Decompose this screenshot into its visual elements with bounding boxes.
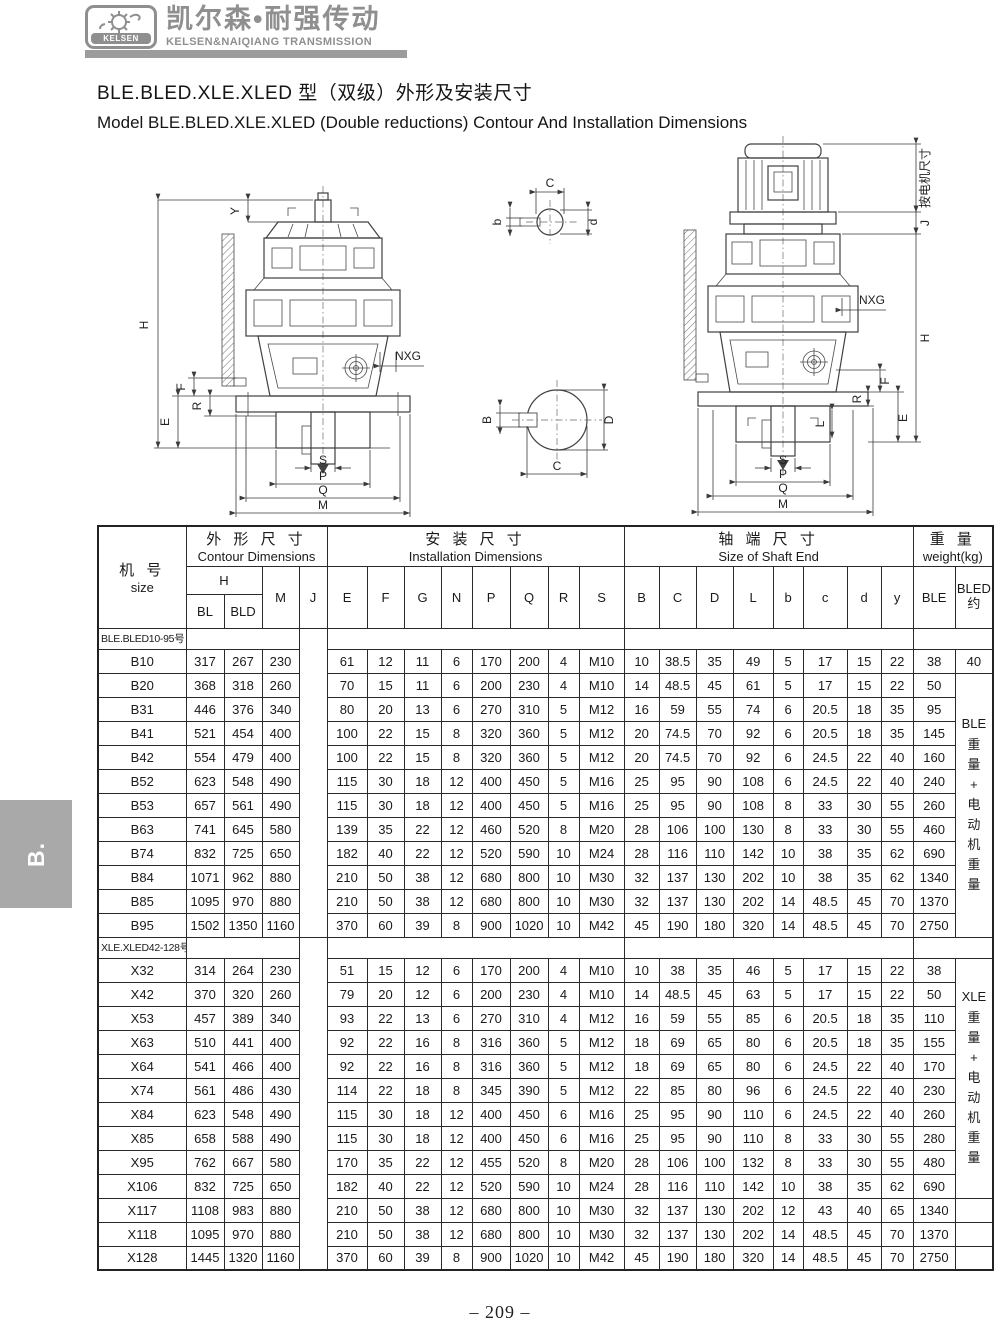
table-cell: 59 — [659, 697, 696, 721]
row-size-cell: B85 — [98, 889, 186, 913]
table-cell: 5 — [773, 673, 803, 697]
table-cell: 45 — [696, 673, 733, 697]
table-cell: 48.5 — [803, 1222, 847, 1246]
table-cell: 210 — [327, 865, 367, 889]
table-cell: 260 — [262, 982, 299, 1006]
table-cell: 360 — [510, 1054, 548, 1078]
dim-label: S — [779, 453, 787, 467]
table-cell: 35 — [367, 1150, 404, 1174]
table-cell: 12 — [441, 865, 472, 889]
table-cell: 79 — [327, 982, 367, 1006]
table-row: B9515021350116037060398900102010M4245190… — [98, 913, 993, 937]
table-cell: 16 — [404, 1054, 441, 1078]
table-cell: 38 — [913, 958, 955, 982]
table-cell: M16 — [579, 769, 624, 793]
table-cell: 360 — [510, 721, 548, 745]
table-cell: 48.5 — [803, 889, 847, 913]
table-cell: 18 — [404, 1078, 441, 1102]
table-cell: 970 — [224, 1222, 262, 1246]
table-cell: 22 — [847, 1102, 881, 1126]
table-cell: 6 — [441, 1006, 472, 1030]
table-cell: 38 — [404, 1198, 441, 1222]
table-cell: 55 — [881, 1126, 913, 1150]
table-cell: 441 — [224, 1030, 262, 1054]
table-cell: 10 — [548, 889, 579, 913]
row-size-cell: X117 — [98, 1198, 186, 1222]
table-cell: M10 — [579, 958, 624, 982]
table-cell: 6 — [773, 1054, 803, 1078]
table-cell: 8 — [441, 1246, 472, 1270]
table-row: X846235484901153018124004506M16259590110… — [98, 1102, 993, 1126]
table-cell: 270 — [472, 697, 510, 721]
table-cell: 8 — [441, 913, 472, 937]
table-cell: 35 — [847, 841, 881, 865]
table-cell: 360 — [510, 1030, 548, 1054]
table-cell: 800 — [510, 1222, 548, 1246]
table-cell: 8 — [773, 1150, 803, 1174]
table-cell: 1095 — [186, 889, 224, 913]
table-cell: 48.5 — [803, 1246, 847, 1270]
dim-label: C — [546, 176, 555, 190]
table-cell: 35 — [696, 958, 733, 982]
table-cell: 22 — [367, 1054, 404, 1078]
table-cell: 725 — [224, 1174, 262, 1198]
table-cell: 5 — [548, 697, 579, 721]
table-cell: 800 — [510, 865, 548, 889]
table-cell: 22 — [847, 1054, 881, 1078]
table-cell: 130 — [733, 817, 773, 841]
brand-name-en: KELSEN&NAIQIANG TRANSMISSION — [166, 36, 380, 48]
j-column-cell — [299, 937, 327, 1270]
table-cell: 62 — [881, 841, 913, 865]
dim-label: Q — [778, 481, 787, 495]
header-col-C: C — [659, 566, 696, 628]
table-row: X957626675801703522124555208M20281061001… — [98, 1150, 993, 1174]
table-cell: 39 — [404, 1246, 441, 1270]
table-cell: 16 — [624, 1006, 659, 1030]
table-cell: 35 — [367, 817, 404, 841]
dim-label: S — [319, 453, 327, 467]
table-cell: 95 — [659, 1102, 696, 1126]
table-cell: 17 — [803, 958, 847, 982]
table-cell: 24.5 — [803, 1078, 847, 1102]
dimension-table-body: BLE.BLED10-95号B1031726723061121161702004… — [98, 628, 993, 1270]
header-col-Q: Q — [510, 566, 548, 628]
table-cell: 12 — [441, 1174, 472, 1198]
table-cell: 39 — [404, 913, 441, 937]
table-cell: 320 — [733, 913, 773, 937]
table-cell: 10 — [773, 1174, 803, 1198]
table-cell: 35 — [881, 697, 913, 721]
table-cell: 202 — [733, 1198, 773, 1222]
table-cell: 106 — [659, 1150, 696, 1174]
table-cell: 18 — [847, 721, 881, 745]
table-cell: 49 — [733, 649, 773, 673]
dim-label: M — [778, 497, 788, 511]
dim-label: J — [918, 220, 932, 226]
table-cell: 6 — [548, 1126, 579, 1150]
table-cell: 74.5 — [659, 721, 696, 745]
technical-drawings: H Y F R E NXG S P Q — [0, 130, 1000, 525]
table-cell: 22 — [404, 1150, 441, 1174]
table-cell: 22 — [847, 745, 881, 769]
table-cell: 92 — [733, 721, 773, 745]
table-cell: 48.5 — [659, 982, 696, 1006]
table-cell: M24 — [579, 1174, 624, 1198]
table-cell: 180 — [696, 1246, 733, 1270]
table-cell: 116 — [659, 1174, 696, 1198]
table-cell: 100 — [696, 817, 733, 841]
header-size-en: size — [99, 580, 186, 595]
table-cell: 18 — [404, 1126, 441, 1150]
table-cell: 22 — [847, 769, 881, 793]
table-cell: 541 — [186, 1054, 224, 1078]
table-cell: 45 — [847, 1246, 881, 1270]
dim-label: L — [813, 420, 827, 427]
table-cell: 400 — [472, 1126, 510, 1150]
table-cell: 240 — [913, 769, 955, 793]
table-cell: 28 — [624, 841, 659, 865]
weight-note-cell: XLE 重 量 + 电 动 机 重 量 — [955, 958, 993, 1198]
table-cell: 5 — [773, 958, 803, 982]
table-cell: 17 — [803, 649, 847, 673]
header-col-J: J — [299, 566, 327, 628]
table-cell: 20.5 — [803, 1006, 847, 1030]
table-cell: 170 — [472, 958, 510, 982]
table-cell: 6 — [773, 769, 803, 793]
table-cell: 190 — [659, 913, 696, 937]
table-cell: 15 — [847, 673, 881, 697]
table-cell: 12 — [773, 1198, 803, 1222]
table-cell: 6 — [441, 697, 472, 721]
table-cell: 10 — [548, 1174, 579, 1198]
dim-label: Q — [318, 483, 327, 497]
table-row: B2036831826070151162002304M101448.545615… — [98, 673, 993, 697]
table-row: X10683272565018240221252059010M242811611… — [98, 1174, 993, 1198]
header-col-L: L — [733, 566, 773, 628]
table-cell: 520 — [510, 1150, 548, 1174]
table-cell: 2750 — [913, 1246, 955, 1270]
table-cell: 590 — [510, 841, 548, 865]
table-cell: 70 — [881, 889, 913, 913]
table-cell: 8 — [441, 721, 472, 745]
table-cell: 18 — [404, 769, 441, 793]
table-cell — [327, 937, 624, 958]
table-cell: M12 — [579, 1030, 624, 1054]
table-row: X3231426423051151261702004M1010383546517… — [98, 958, 993, 982]
table-row: X74561486430114221883453905M122285809662… — [98, 1078, 993, 1102]
row-size-cell: X74 — [98, 1078, 186, 1102]
table-cell: 32 — [624, 889, 659, 913]
table-cell: 2750 — [913, 913, 955, 937]
table-cell: 35 — [696, 649, 733, 673]
table-cell: M12 — [579, 1006, 624, 1030]
table-cell: 725 — [224, 841, 262, 865]
table-cell: 400 — [472, 769, 510, 793]
table-cell: 6 — [773, 745, 803, 769]
table-cell: 580 — [262, 1150, 299, 1174]
table-cell: 18 — [404, 1102, 441, 1126]
table-cell: M30 — [579, 889, 624, 913]
table-cell: 35 — [881, 721, 913, 745]
header-col-M: M — [262, 566, 299, 628]
table-cell: 314 — [186, 958, 224, 982]
table-cell: 446 — [186, 697, 224, 721]
table-cell: 110 — [696, 1174, 733, 1198]
table-cell: 490 — [262, 1102, 299, 1126]
table-cell: 11 — [404, 649, 441, 673]
table-cell: 14 — [624, 982, 659, 1006]
table-cell: 61 — [733, 673, 773, 697]
table-cell: 6 — [773, 1102, 803, 1126]
row-size-cell: X63 — [98, 1030, 186, 1054]
table-row: X5345738934093221362703104M1216595585620… — [98, 1006, 993, 1030]
table-cell: 10 — [624, 649, 659, 673]
header-installation: 安 装 尺 寸 Installation Dimensions — [327, 526, 624, 566]
table-cell: 132 — [733, 1150, 773, 1174]
table-cell: 230 — [913, 1078, 955, 1102]
table-row: B526235484901153018124004505M16259590108… — [98, 769, 993, 793]
header-col-b: b — [773, 566, 803, 628]
dim-label: H — [137, 321, 151, 330]
table-cell: 5 — [773, 649, 803, 673]
table-cell: 110 — [696, 841, 733, 865]
table-cell: 50 — [367, 1222, 404, 1246]
table-cell: 370 — [186, 982, 224, 1006]
table-cell: 30 — [367, 1126, 404, 1150]
dimension-lines: 按电机尺寸 J H NXG F R E L S — [698, 144, 932, 516]
table-cell: 657 — [186, 793, 224, 817]
table-cell: 38.5 — [659, 649, 696, 673]
table-cell: 318 — [224, 673, 262, 697]
table-cell: 1350 — [224, 913, 262, 937]
dim-label: NXG — [859, 293, 885, 307]
table-row: X856585884901153018124004506M16259590110… — [98, 1126, 993, 1150]
gear-logo-icon — [89, 8, 153, 34]
table-cell: 6 — [773, 721, 803, 745]
table-row: X6351044140092221683163605M1218696580620… — [98, 1030, 993, 1054]
table-cell: 108 — [733, 769, 773, 793]
table-cell: 680 — [472, 1222, 510, 1246]
table-cell: 280 — [913, 1126, 955, 1150]
table-cell: 12 — [441, 769, 472, 793]
table-cell: 5 — [548, 793, 579, 817]
table-cell: 115 — [327, 793, 367, 817]
table-cell: 17 — [803, 673, 847, 697]
table-cell: 93 — [327, 1006, 367, 1030]
table-cell: 70 — [881, 1246, 913, 1270]
table-cell: 40 — [881, 769, 913, 793]
table-cell: 18 — [847, 697, 881, 721]
table-cell: 90 — [696, 769, 733, 793]
table-cell: 70 — [881, 913, 913, 937]
table-cell: 5 — [773, 982, 803, 1006]
dim-label: C — [553, 459, 562, 473]
table-cell: 28 — [624, 1174, 659, 1198]
table-cell: M10 — [579, 673, 624, 697]
table-cell: 200 — [472, 673, 510, 697]
table-cell: 6 — [548, 1102, 579, 1126]
table-cell: 520 — [510, 817, 548, 841]
table-cell: 25 — [624, 1126, 659, 1150]
table-cell: 12 — [367, 649, 404, 673]
table-cell: 264 — [224, 958, 262, 982]
table-cell: M16 — [579, 1102, 624, 1126]
table-cell: 85 — [733, 1006, 773, 1030]
table-cell: 680 — [472, 865, 510, 889]
dim-label: R — [190, 401, 204, 410]
table-cell: 60 — [367, 913, 404, 937]
table-cell: 65 — [696, 1054, 733, 1078]
output-shaft-section: B D C — [480, 380, 616, 478]
table-cell: 12 — [441, 841, 472, 865]
table-cell: 14 — [773, 889, 803, 913]
table-cell: 5 — [548, 1030, 579, 1054]
table-cell: 142 — [733, 1174, 773, 1198]
table-cell: 430 — [262, 1078, 299, 1102]
table-cell: 130 — [696, 1198, 733, 1222]
table-cell: 5 — [548, 745, 579, 769]
table-row: B42554479400100221583203605M122074.57092… — [98, 745, 993, 769]
row-size-cell: X84 — [98, 1102, 186, 1126]
table-cell: 230 — [510, 982, 548, 1006]
header-weight: 重 量 weight(kg) — [913, 526, 993, 566]
table-cell: 106 — [659, 817, 696, 841]
table-cell: 590 — [510, 1174, 548, 1198]
row-size-cell: B74 — [98, 841, 186, 865]
table-cell: 8 — [773, 793, 803, 817]
table-cell: 316 — [472, 1054, 510, 1078]
row-size-cell: B42 — [98, 745, 186, 769]
header-col-D: D — [696, 566, 733, 628]
table-cell: 15 — [847, 649, 881, 673]
motor-reducer-outline — [684, 136, 868, 476]
table-cell: 10 — [548, 913, 579, 937]
table-cell: 10 — [773, 841, 803, 865]
dim-label: Y — [228, 207, 242, 215]
table-cell — [624, 628, 913, 649]
table-cell: 454 — [224, 721, 262, 745]
table-cell: 90 — [696, 1102, 733, 1126]
table-cell: 69 — [659, 1054, 696, 1078]
reducer-front-view-drawing: H Y F R E NXG S P Q — [128, 130, 463, 522]
table-cell: 24.5 — [803, 1102, 847, 1126]
table-cell: 8 — [773, 817, 803, 841]
table-cell: 561 — [224, 793, 262, 817]
table-cell: 10 — [548, 1222, 579, 1246]
table-cell: 490 — [262, 769, 299, 793]
table-cell: 880 — [262, 865, 299, 889]
table-cell: 182 — [327, 1174, 367, 1198]
dim-label: b — [490, 218, 504, 225]
logo-kelsen-label: KELSEN — [91, 33, 151, 44]
table-cell — [913, 937, 993, 958]
table-cell: 130 — [696, 889, 733, 913]
table-cell: 389 — [224, 1006, 262, 1030]
header-col-B: B — [624, 566, 659, 628]
table-cell: 170 — [327, 1150, 367, 1174]
table-cell: 22 — [881, 673, 913, 697]
table-cell: 455 — [472, 1150, 510, 1174]
table-cell: 1320 — [224, 1246, 262, 1270]
table-cell: 160 — [913, 745, 955, 769]
table-cell: 92 — [327, 1054, 367, 1078]
table-cell: M16 — [579, 1126, 624, 1150]
table-cell: 1095 — [186, 1222, 224, 1246]
table-cell: 30 — [847, 817, 881, 841]
table-cell — [327, 628, 624, 649]
dim-label: D — [602, 415, 616, 424]
row-size-cell: B53 — [98, 793, 186, 817]
table-cell: 38 — [404, 889, 441, 913]
reducer-with-motor-drawing: 按电机尺寸 J H NXG F R E L S — [618, 130, 953, 522]
table-cell — [913, 628, 993, 649]
table-cell: 490 — [262, 1126, 299, 1150]
section-tab-b: B. — [0, 800, 72, 908]
table-cell: 110 — [913, 1006, 955, 1030]
table-cell: 35 — [881, 1006, 913, 1030]
table-row: X6454146640092221683163605M1218696580624… — [98, 1054, 993, 1078]
table-cell: 8 — [441, 1078, 472, 1102]
row-size-cell: B41 — [98, 721, 186, 745]
table-cell: 400 — [472, 1102, 510, 1126]
table-cell: 22 — [367, 1030, 404, 1054]
table-cell: 1108 — [186, 1198, 224, 1222]
table-cell: 96 — [733, 1078, 773, 1102]
table-cell: 230 — [510, 673, 548, 697]
table-cell: 520 — [472, 841, 510, 865]
table-cell: 108 — [733, 793, 773, 817]
header-col-F: F — [367, 566, 404, 628]
table-cell: 24.5 — [803, 769, 847, 793]
table-cell: 137 — [659, 889, 696, 913]
table-cell: 40 — [881, 745, 913, 769]
header-col-S: S — [579, 566, 624, 628]
header-shaft-end: 轴 端 尺 寸 Size of Shaft End — [624, 526, 913, 566]
dim-label: F — [878, 377, 892, 384]
table-cell: 55 — [881, 817, 913, 841]
table-cell: 320 — [733, 1246, 773, 1270]
table-cell: 15 — [404, 721, 441, 745]
table-cell: 340 — [262, 697, 299, 721]
table-cell: 460 — [472, 817, 510, 841]
table-cell: 548 — [224, 769, 262, 793]
table-cell: 400 — [262, 745, 299, 769]
table-cell: 22 — [367, 745, 404, 769]
table-cell: 30 — [847, 793, 881, 817]
table-cell: 55 — [881, 1150, 913, 1174]
header-col-N: N — [441, 566, 472, 628]
table-cell: 100 — [327, 745, 367, 769]
table-cell: 15 — [847, 958, 881, 982]
table-cell: M12 — [579, 1054, 624, 1078]
table-cell: 548 — [224, 1102, 262, 1126]
table-cell: 457 — [186, 1006, 224, 1030]
title-block: BLE.BLED.XLE.XLED 型（双级）外形及安装尺寸 Model BLE… — [97, 78, 747, 133]
table-cell: 680 — [472, 1198, 510, 1222]
table-cell: 13 — [404, 1006, 441, 1030]
table-cell: 50 — [367, 889, 404, 913]
table-row: X12814451320116037060398900102010M424519… — [98, 1246, 993, 1270]
table-cell: 14 — [773, 1222, 803, 1246]
table-cell: 400 — [262, 1054, 299, 1078]
table-cell: 400 — [262, 1030, 299, 1054]
table-cell: 6 — [773, 1030, 803, 1054]
table-cell: 61 — [327, 649, 367, 673]
table-cell: 880 — [262, 889, 299, 913]
table-cell: 450 — [510, 769, 548, 793]
table-cell: 38 — [803, 1174, 847, 1198]
